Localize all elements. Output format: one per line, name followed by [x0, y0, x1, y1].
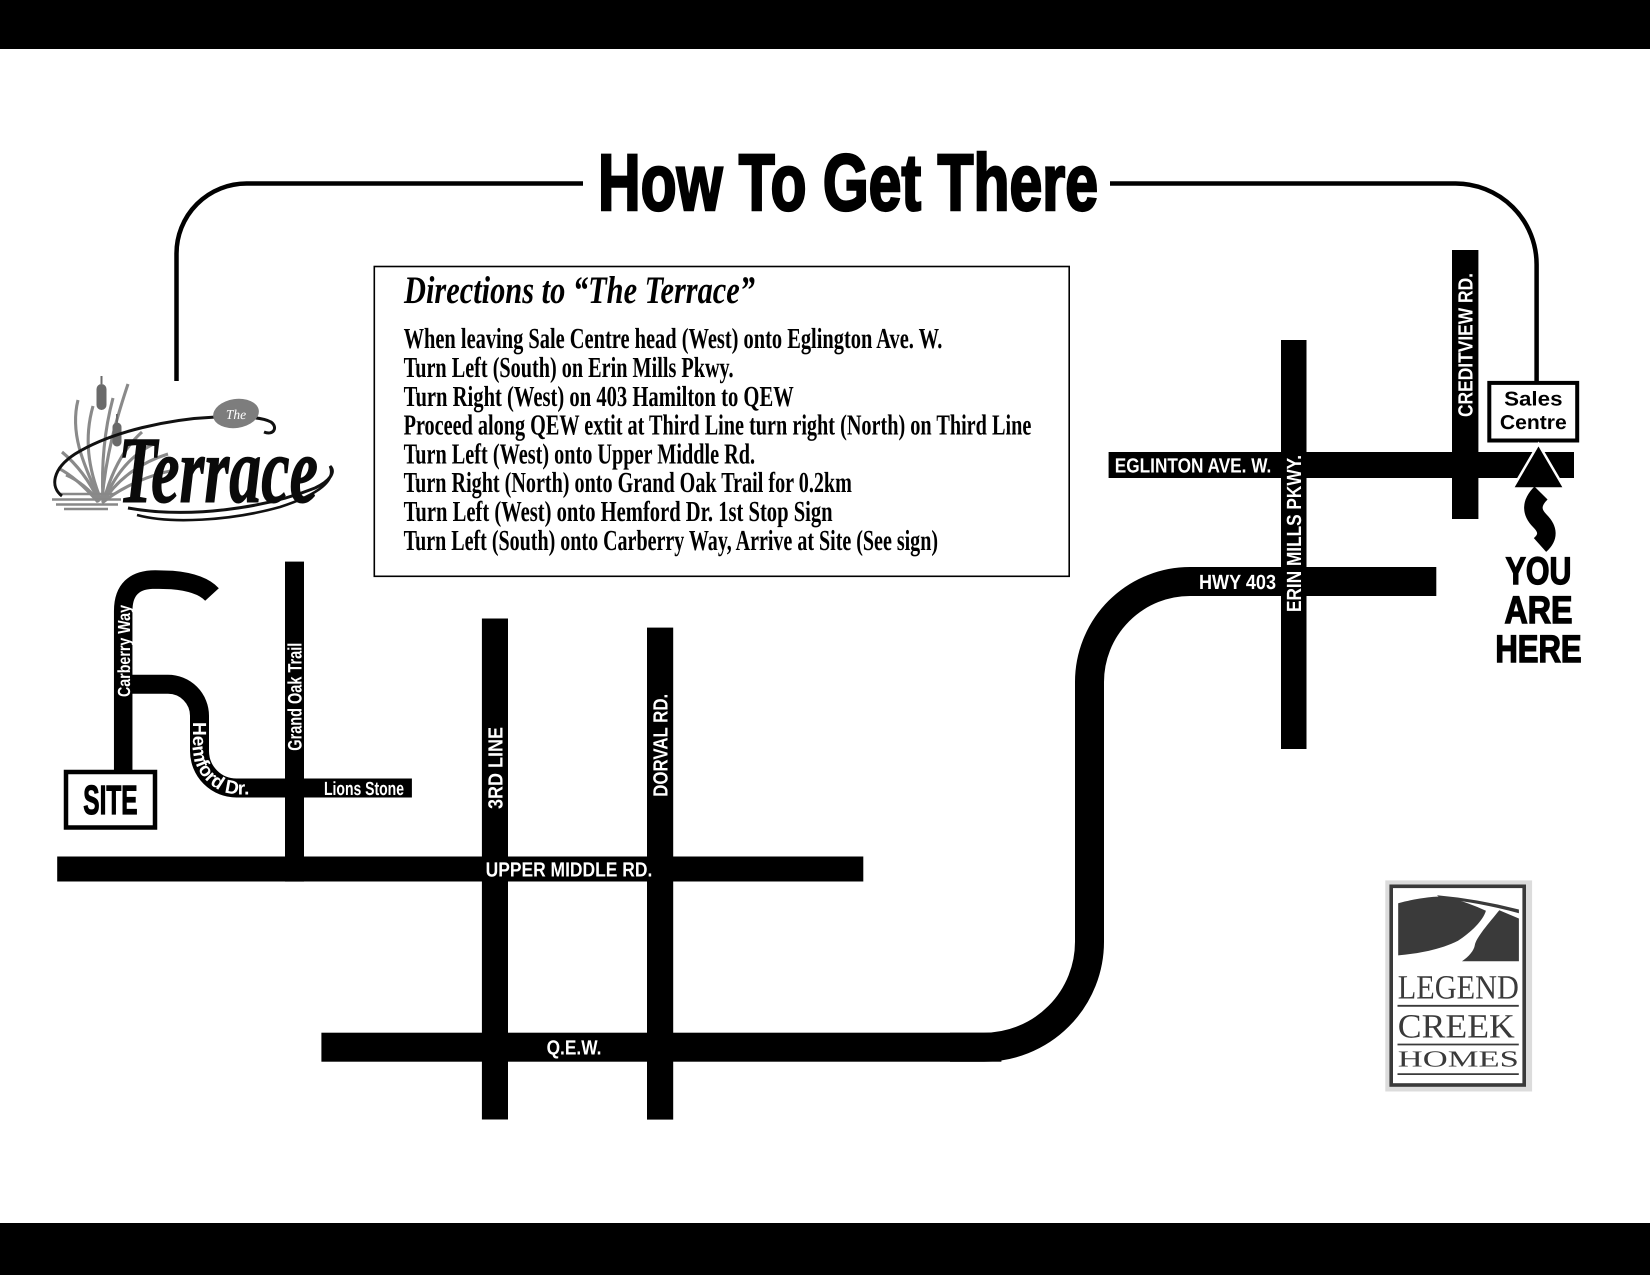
svg-text:HOMES: HOMES — [1398, 1047, 1519, 1072]
svg-text:HERE: HERE — [1495, 628, 1581, 671]
svg-text:UPPER MIDDLE RD.: UPPER MIDDLE RD. — [486, 859, 653, 882]
svg-text:HWY 403: HWY 403 — [1199, 571, 1276, 594]
svg-text:Carberry Way: Carberry Way — [114, 605, 134, 697]
svg-text:Lions Stone: Lions Stone — [324, 779, 404, 800]
svg-text:Turn Left (West) onto Upper Mi: Turn Left (West) onto Upper Middle Rd. — [404, 438, 755, 470]
svg-text:Sales: Sales — [1504, 388, 1562, 410]
svg-text:LEGEND: LEGEND — [1398, 970, 1519, 1007]
svg-text:CREEK: CREEK — [1398, 1008, 1515, 1045]
svg-text:Terrace: Terrace — [118, 417, 318, 523]
svg-text:Centre: Centre — [1500, 412, 1567, 434]
svg-text:Grand Oak Trail: Grand Oak Trail — [285, 643, 307, 751]
svg-text:3RD LINE: 3RD LINE — [484, 727, 507, 809]
svg-text:CREDITVIEW RD.: CREDITVIEW RD. — [1455, 273, 1478, 417]
svg-text:SITE: SITE — [83, 777, 137, 823]
svg-text:Turn Left (West) onto Hemford: Turn Left (West) onto Hemford Dr. 1st St… — [404, 496, 833, 528]
svg-text:Q.E.W.: Q.E.W. — [547, 1037, 602, 1060]
svg-text:Turn Left (South) on Erin Mill: Turn Left (South) on Erin Mills Pkwy. — [404, 352, 734, 384]
svg-text:Proceed along QEW extit at Thi: Proceed along QEW extit at Third Line tu… — [404, 410, 1032, 442]
svg-text:How To Get There: How To Get There — [598, 138, 1098, 227]
svg-text:Directions to “The Terrace”: Directions to “The Terrace” — [403, 269, 755, 312]
svg-text:When leaving Sale Centre head: When leaving Sale Centre head (West) ont… — [404, 323, 943, 355]
svg-text:Turn Left (South) onto Carberr: Turn Left (South) onto Carberry Way, Arr… — [404, 525, 938, 557]
svg-text:ERIN MILLS PKWY.: ERIN MILLS PKWY. — [1283, 455, 1306, 612]
svg-text:Turn Right (North) onto Grand: Turn Right (North) onto Grand Oak Trail … — [404, 467, 852, 499]
svg-text:Turn Right (West) on 403 Hamil: Turn Right (West) on 403 Hamilton to QEW — [404, 381, 794, 413]
svg-text:DORVAL RD.: DORVAL RD. — [649, 694, 672, 797]
svg-text:EGLINTON AVE. W.: EGLINTON AVE. W. — [1115, 455, 1272, 478]
svg-text:YOU: YOU — [1506, 550, 1572, 593]
svg-text:ARE: ARE — [1505, 589, 1573, 632]
